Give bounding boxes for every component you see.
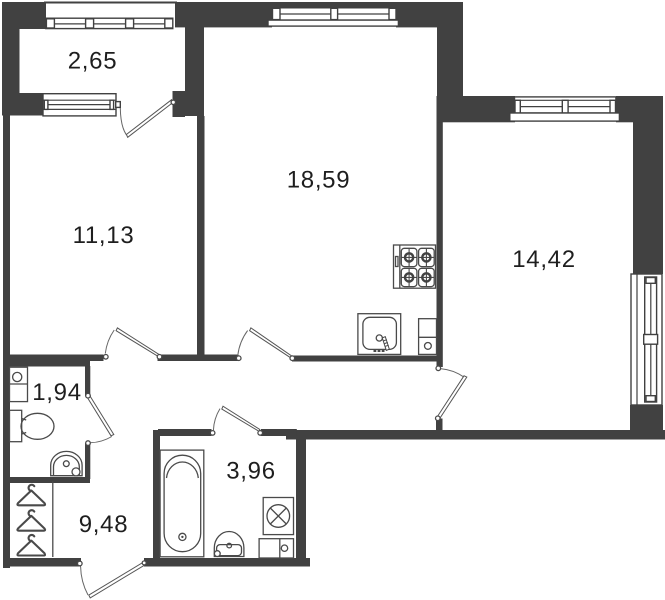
svg-text:11,13: 11,13: [73, 222, 135, 249]
svg-text:1,94: 1,94: [32, 379, 82, 406]
svg-text:3,96: 3,96: [226, 458, 276, 485]
svg-text:18,59: 18,59: [287, 167, 351, 194]
svg-text:9,48: 9,48: [79, 511, 129, 538]
svg-text:2,65: 2,65: [68, 48, 118, 75]
svg-text:14,42: 14,42: [512, 246, 576, 273]
